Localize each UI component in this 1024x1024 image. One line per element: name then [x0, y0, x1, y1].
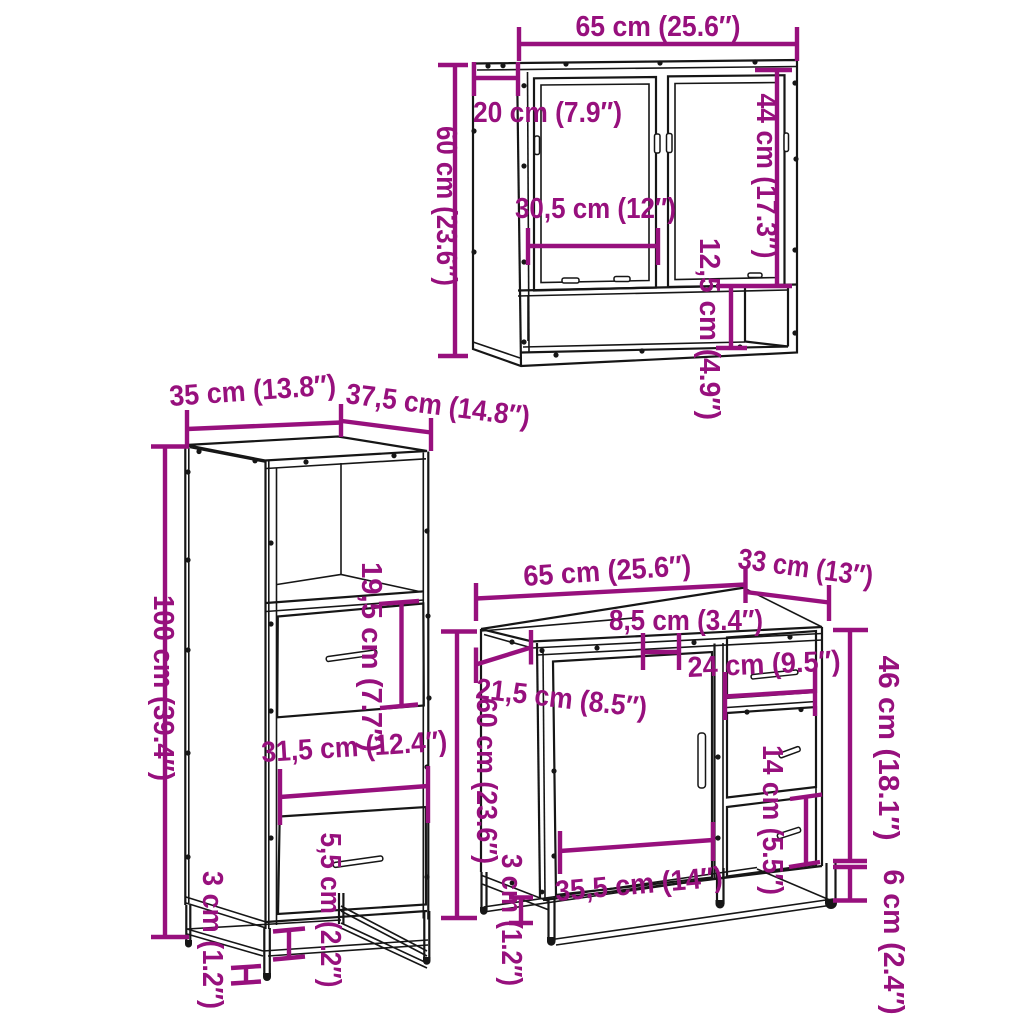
svg-text:3 cm (1.2″): 3 cm (1.2″) — [495, 854, 527, 986]
svg-text:30,5 cm (12″): 30,5 cm (12″) — [515, 193, 676, 225]
svg-text:44 cm (17.3″): 44 cm (17.3″) — [750, 94, 782, 259]
svg-text:8,5 cm (3.4″): 8,5 cm (3.4″) — [609, 605, 763, 637]
svg-text:60 cm (23.6″): 60 cm (23.6″) — [430, 126, 462, 286]
svg-text:65 cm (25.6″): 65 cm (25.6″) — [576, 11, 741, 43]
svg-text:46 cm (18.1″): 46 cm (18.1″) — [872, 656, 904, 841]
svg-text:24 cm (9.5″): 24 cm (9.5″) — [687, 645, 841, 684]
svg-text:14 cm (5.5″): 14 cm (5.5″) — [756, 745, 788, 895]
svg-text:19,5 cm (7.7″): 19,5 cm (7.7″) — [355, 562, 387, 752]
svg-text:5,5 cm (2.2″): 5,5 cm (2.2″) — [314, 833, 346, 988]
svg-text:6 cm (2.4″): 6 cm (2.4″) — [877, 870, 909, 1015]
svg-text:60 cm (23.6″): 60 cm (23.6″) — [470, 698, 502, 864]
svg-text:100 cm (39.4″): 100 cm (39.4″) — [147, 595, 179, 781]
svg-text:3 cm (1.2″): 3 cm (1.2″) — [196, 871, 228, 1009]
svg-text:12,5 cm (4.9″): 12,5 cm (4.9″) — [693, 238, 725, 420]
svg-text:20 cm (7.9″): 20 cm (7.9″) — [473, 97, 622, 129]
